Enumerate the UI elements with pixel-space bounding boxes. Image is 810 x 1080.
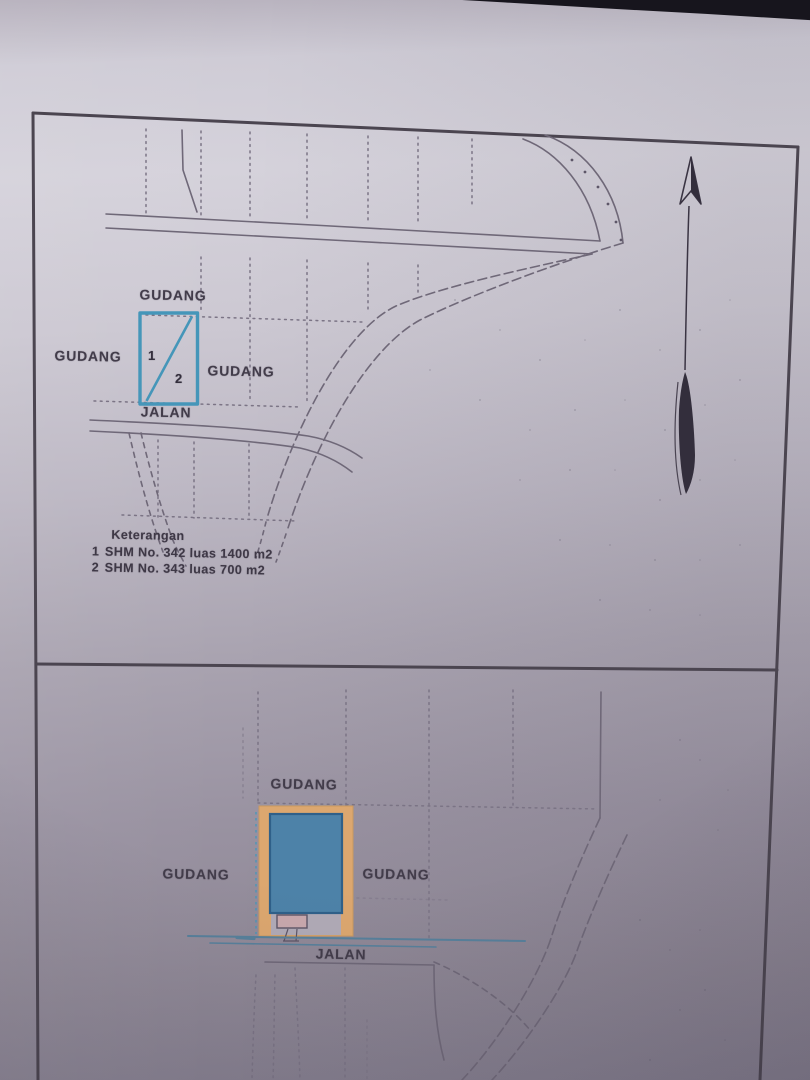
legend-item-number: 1: [92, 544, 105, 558]
top-map-label-gudang-east: GUDANG: [205, 362, 277, 379]
top-map-label-gudang-north: GUDANG: [137, 286, 209, 303]
photographed-site-plan-document: GUDANG GUDANG GUDANG JALAN 1 2 Keteranga…: [0, 0, 810, 1080]
legend-item-text: SHM No. 343 luas 700 m2: [105, 561, 266, 578]
legend-item: 1 SHM No. 342 luas 1400 m2: [92, 544, 273, 561]
legend-item-number: 2: [92, 560, 105, 574]
parcel-number-2: 2: [175, 371, 182, 386]
top-map-roads: [90, 130, 623, 566]
north-arrow-icon: [675, 157, 701, 495]
legend: Keterangan 1 SHM No. 342 luas 1400 m2 2 …: [92, 527, 274, 577]
legend-item-text: SHM No. 342 luas 1400 m2: [105, 545, 273, 562]
building-footprint: [270, 814, 342, 913]
top-map-label-gudang-west: GUDANG: [54, 347, 122, 364]
top-map-grid-lines: [94, 129, 472, 521]
bottom-map-label-gudang-east: GUDANG: [360, 865, 432, 882]
bottom-map-label-gudang-north: GUDANG: [267, 775, 341, 792]
top-map-label-jalan: JALAN: [138, 403, 194, 420]
legend-title: Keterangan: [111, 528, 273, 545]
parcel-number-1: 1: [148, 348, 155, 363]
annex-structure: [277, 915, 307, 928]
bottom-map-label-gudang-west: GUDANG: [162, 865, 230, 882]
document-frame: [33, 113, 798, 1080]
paper-speckles: [429, 299, 741, 1061]
bottom-map-label-jalan: JALAN: [315, 946, 367, 963]
plot-and-building: [256, 806, 353, 941]
